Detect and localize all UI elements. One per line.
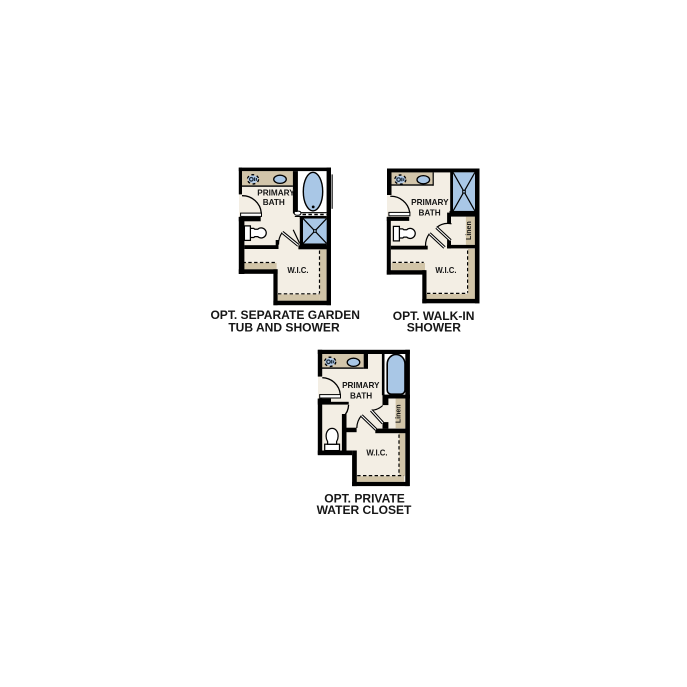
svg-text:W.I.C.: W.I.C. <box>366 448 387 457</box>
svg-text:BATH: BATH <box>419 209 441 218</box>
svg-text:W.I.C.: W.I.C. <box>435 266 456 275</box>
svg-text:Linen: Linen <box>466 221 473 240</box>
svg-text:PRIMARY: PRIMARY <box>342 381 380 390</box>
svg-text:SHOWER: SHOWER <box>407 320 462 334</box>
svg-text:WATER CLOSET: WATER CLOSET <box>317 503 412 517</box>
svg-text:Linen: Linen <box>395 404 402 423</box>
svg-text:PRIMARY: PRIMARY <box>411 198 449 207</box>
svg-text:W.I.C.: W.I.C. <box>287 266 308 275</box>
svg-text:TUB AND SHOWER: TUB AND SHOWER <box>228 320 340 334</box>
svg-text:PRIMARY: PRIMARY <box>257 189 295 198</box>
svg-text:BATH: BATH <box>263 198 285 207</box>
svg-text:BATH: BATH <box>350 392 372 401</box>
